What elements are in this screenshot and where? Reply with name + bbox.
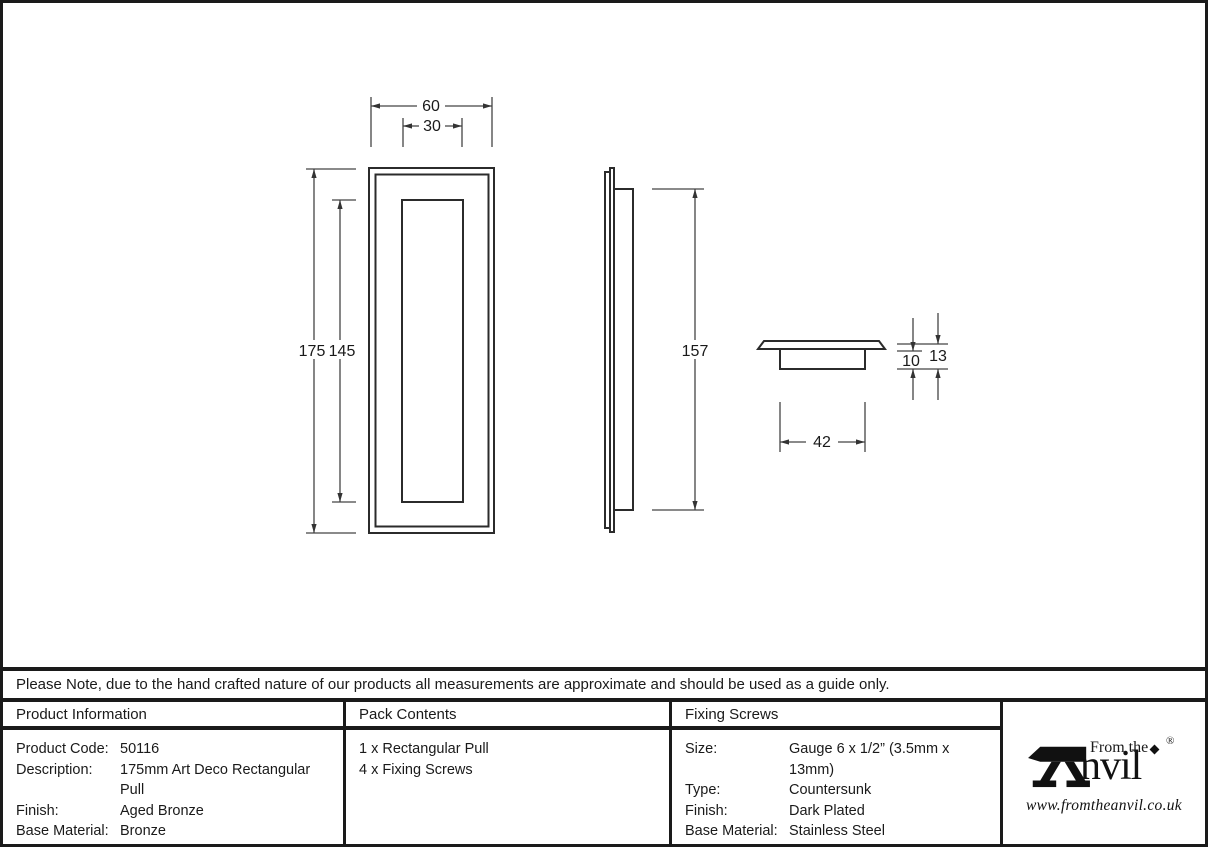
brand-logo-box: nvil From the ® www.fromtheanvil.co.uk (1003, 702, 1205, 847)
technical-drawing-area: 60 30 175 145 157 42 10 13 (3, 3, 1205, 667)
list-item: 1 x Rectangular Pull (359, 739, 663, 760)
spec-table: Product Information Product Code: 50116 … (3, 702, 1205, 847)
row-value: Bronze (120, 821, 337, 842)
row-value: 50116 (120, 739, 337, 760)
measurement-note-text: Please Note, due to the hand crafted nat… (16, 676, 890, 693)
table-row: Product Code: 50116 (16, 739, 337, 760)
logo-tagline: From the (1090, 739, 1148, 757)
pack-contents-column: Pack Contents 1 x Rectangular Pull 4 x F… (346, 702, 672, 847)
list-item: 4 x Fixing Screws (359, 760, 663, 781)
row-value: 175mm Art Deco Rectangular Pull (120, 760, 337, 801)
row-label: Finish: (16, 801, 120, 822)
row-value: Aged Bronze (120, 801, 337, 822)
measurement-note-row: Please Note, due to the hand crafted nat… (3, 667, 1205, 702)
front-view (369, 168, 494, 533)
product-information-body: Product Code: 50116 Description: 175mm A… (3, 730, 343, 842)
dim-inner-height-label: 145 (329, 343, 356, 360)
table-row: Base Material: Stainless Steel (685, 821, 994, 842)
product-information-header: Product Information (3, 702, 343, 730)
dim-base-width-label: 42 (813, 434, 831, 451)
pack-contents-header: Pack Contents (346, 702, 669, 730)
pack-contents-body: 1 x Rectangular Pull 4 x Fixing Screws (346, 730, 669, 780)
pack-contents-header-text: Pack Contents (359, 706, 457, 723)
row-label: Product Code: (16, 739, 120, 760)
fixing-screws-header-text: Fixing Screws (685, 706, 778, 723)
row-value: Stainless Steel (789, 821, 994, 842)
dimension-annotations: 60 30 175 145 157 42 10 13 (294, 97, 948, 533)
table-row: Base Material: Bronze (16, 821, 337, 842)
logo-website-url: www.fromtheanvil.co.uk (1026, 797, 1182, 815)
dim-outer-height-label: 175 (299, 343, 326, 360)
fixing-screws-column: Fixing Screws Size: Gauge 6 x 1/2” (3.5m… (672, 702, 1003, 847)
dim-base-depth-label: 10 (902, 353, 920, 370)
product-information-column: Product Information Product Code: 50116 … (3, 702, 346, 847)
fixing-screws-header: Fixing Screws (672, 702, 1000, 730)
registered-trademark-symbol: ® (1166, 735, 1174, 747)
spec-sheet-page: 60 30 175 145 157 42 10 13 Please Note, … (0, 0, 1208, 847)
diamond-icon (1150, 744, 1160, 754)
row-label: Finish: (685, 801, 789, 822)
table-row: Description: 175mm Art Deco Rectangular … (16, 760, 337, 801)
row-label: Base Material: (16, 821, 120, 842)
row-value: Countersunk (789, 780, 994, 801)
row-value: Gauge 6 x 1/2” (3.5mm x 13mm) (789, 739, 994, 780)
dim-recess-height-label: 157 (682, 343, 709, 360)
row-value: Dark Plated (789, 801, 994, 822)
row-label: Type: (685, 780, 789, 801)
product-information-header-text: Product Information (16, 706, 147, 723)
table-row: Finish: Dark Plated (685, 801, 994, 822)
technical-drawing: 60 30 175 145 157 42 10 13 (3, 3, 1208, 667)
row-label: Description: (16, 760, 120, 801)
table-row: Finish: Aged Bronze (16, 801, 337, 822)
row-label: Base Material: (685, 821, 789, 842)
side-view (605, 168, 633, 532)
row-label: Size: (685, 739, 789, 780)
top-view (758, 341, 885, 369)
dim-total-depth-label: 13 (929, 348, 947, 365)
from-the-anvil-logo: nvil From the ® (1028, 738, 1180, 790)
dim-inner-width-label: 30 (423, 118, 441, 135)
table-row: Type: Countersunk (685, 780, 994, 801)
table-row: Size: Gauge 6 x 1/2” (3.5mm x 13mm) (685, 739, 994, 780)
dim-outer-width-label: 60 (422, 98, 440, 115)
fixing-screws-body: Size: Gauge 6 x 1/2” (3.5mm x 13mm) Type… (672, 730, 1000, 842)
